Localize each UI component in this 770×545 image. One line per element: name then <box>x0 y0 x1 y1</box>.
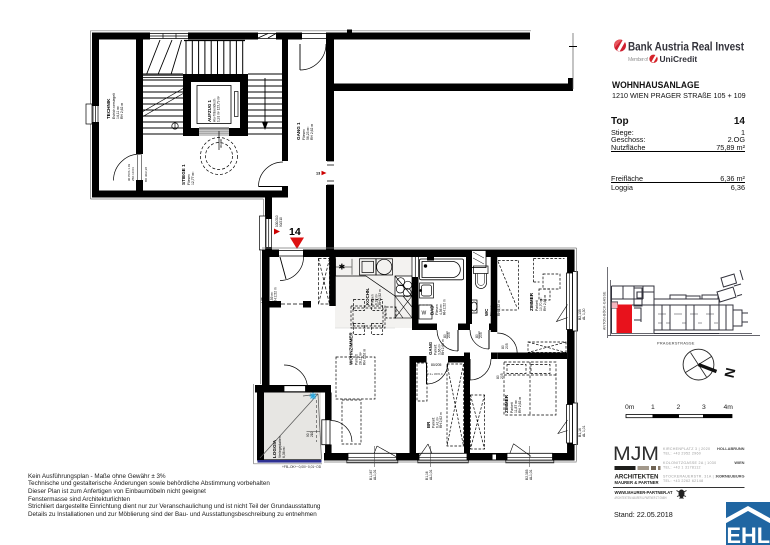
svg-text:12,77 m²: 12,77 m² <box>191 171 195 185</box>
svg-text:W: W <box>422 311 427 317</box>
svg-text:RH 2,52 m: RH 2,52 m <box>497 300 501 316</box>
svg-text:HOLLABRUNN: HOLLABRUNN <box>717 446 745 451</box>
svg-text:AL1,01: AL1,01 <box>373 469 377 480</box>
svg-text:RH 2,52 m: RH 2,52 m <box>378 289 382 305</box>
svg-text:TECHNIK: TECHNIK <box>106 98 111 119</box>
svg-text:ARCHITEKTEN: ARCHITEKTEN <box>615 474 659 481</box>
svg-text:RH 2,62 m: RH 2,62 m <box>441 339 445 355</box>
svg-text:205: 205 <box>505 343 509 349</box>
svg-text:BI 2+ 3P/2,0: BI 2+ 3P/2,0 <box>426 372 443 376</box>
svg-text:210: 210 <box>310 431 314 437</box>
svg-text:UniCredit: UniCredit <box>660 54 698 64</box>
svg-text:LOGGIA: LOGGIA <box>272 439 277 458</box>
svg-text:6,36 m²: 6,36 m² <box>282 446 286 458</box>
svg-text:KOLONITZGASSE 2A | 1030: KOLONITZGASSE 2A | 1030 <box>663 461 716 465</box>
svg-text:KIRCHENPLATZ 3 | 2020: KIRCHENPLATZ 3 | 2020 <box>663 447 710 451</box>
svg-text:STIEGE 1: STIEGE 1 <box>181 164 186 185</box>
svg-text:ZIMMER: ZIMMER <box>529 292 534 311</box>
svg-text:13: 13 <box>316 172 320 176</box>
svg-text:KOCHN.: KOCHN. <box>365 288 370 305</box>
svg-text:RH 2,52 m: RH 2,52 m <box>443 299 447 315</box>
svg-text:+FB–OK+−0,00/−0,01−OD: +FB–OK+−0,00/−0,01−OD <box>282 465 322 469</box>
svg-text:205: 205 <box>447 332 451 338</box>
svg-text:RH 2,62 m: RH 2,62 m <box>310 124 314 140</box>
svg-text:205: 205 <box>500 373 504 379</box>
svg-text:AL 1,30: AL 1,30 <box>582 308 586 320</box>
svg-text:AUFZUG 1: AUFZUG 1 <box>207 99 212 122</box>
svg-text:✱: ✱ <box>339 263 346 272</box>
svg-text:Member of: Member of <box>628 57 649 63</box>
svg-text:GANG: GANG <box>428 341 433 355</box>
svg-text:RH 2,62 m: RH 2,62 m <box>120 103 124 119</box>
svg-text:EHL: EHL <box>727 523 770 545</box>
svg-text:90/200: 90/200 <box>219 138 223 148</box>
svg-text:KORNEUBURG: KORNEUBURG <box>716 474 744 479</box>
svg-text:TEL: +43 2952 2960: TEL: +43 2952 2960 <box>663 452 701 456</box>
svg-text:AL1,01: AL1,01 <box>529 469 533 480</box>
svg-text:GANG 1: GANG 1 <box>296 122 301 140</box>
svg-text:Bank Austria Real Invest: Bank Austria Real Invest <box>628 40 744 54</box>
svg-text:14: 14 <box>289 226 301 238</box>
svg-text:RH 2,62 m: RH 2,62 m <box>518 397 522 413</box>
svg-text:BAD: BAD <box>430 305 435 315</box>
svg-text:TEL: +43 2262 62148: TEL: +43 2262 62148 <box>663 479 703 483</box>
svg-text:205: 205 <box>479 332 483 338</box>
svg-text:BD 30/2,38: BD 30/2,38 <box>144 167 148 182</box>
svg-text:VR: VR <box>261 296 266 303</box>
svg-text:0m: 0m <box>625 404 635 411</box>
svg-text:WC: WC <box>484 308 489 316</box>
svg-text:1,91 m² 123,79 m²: 1,91 m² 123,79 m² <box>216 96 220 122</box>
svg-text:RH 2,62 m: RH 2,62 m <box>439 412 443 428</box>
svg-text:ARCHITEKTEN MAURER & PARTNER Z: ARCHITEKTEN MAURER & PARTNER ZT GMBH <box>615 496 668 500</box>
svg-text:TEL: +43 1 3178112: TEL: +43 1 3178112 <box>663 466 701 470</box>
svg-text:N: N <box>721 366 738 379</box>
svg-text:2: 2 <box>677 404 681 411</box>
svg-text:AL 1,01: AL 1,01 <box>582 425 586 437</box>
svg-text:25K 10 04: 25K 10 04 <box>131 167 135 181</box>
svg-text:ANTON-BÖCK-GASSE: ANTON-BÖCK-GASSE <box>603 291 607 330</box>
svg-text:BR: BR <box>426 421 431 428</box>
svg-text:RH 2,62 m: RH 2,62 m <box>543 295 547 311</box>
svg-text:RH 2,52 m: RH 2,52 m <box>274 287 278 303</box>
svg-text:80/205: 80/205 <box>431 363 441 367</box>
svg-text:WOHNZIMMER: WOHNZIMMER <box>349 332 354 365</box>
svg-text:90/210: 90/210 <box>279 217 283 227</box>
svg-text:AL1,01: AL1,01 <box>429 469 433 480</box>
svg-text:3: 3 <box>702 404 706 411</box>
svg-text:ZIMMER: ZIMMER <box>504 394 509 413</box>
svg-text:MJM: MJM <box>613 444 659 465</box>
svg-text:MAURER & PARTNER: MAURER & PARTNER <box>615 480 659 486</box>
svg-text:1: 1 <box>651 404 655 411</box>
svg-text:WIEN: WIEN <box>734 460 744 465</box>
svg-text:4m: 4m <box>724 404 734 411</box>
